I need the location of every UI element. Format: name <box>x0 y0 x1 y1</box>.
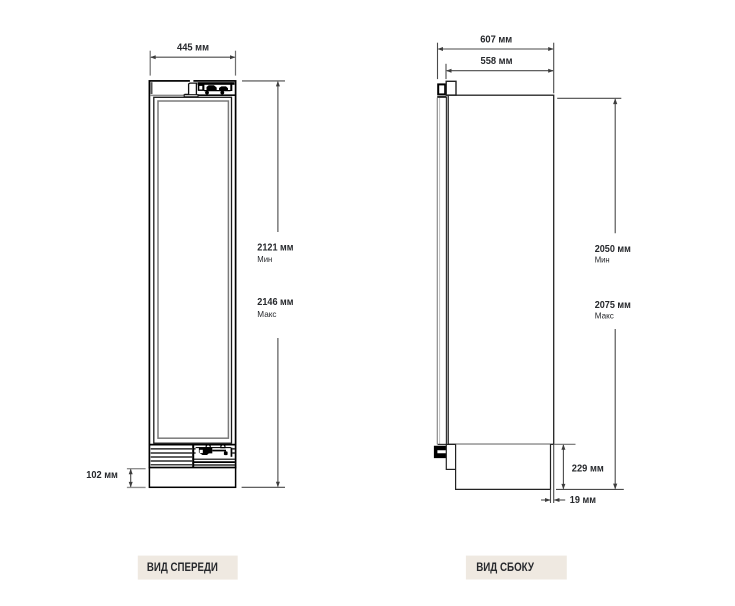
svg-text:229 мм: 229 мм <box>572 464 604 475</box>
svg-text:Макс: Макс <box>257 309 277 319</box>
svg-text:558 мм: 558 мм <box>481 56 513 67</box>
svg-text:Мин: Мин <box>257 254 272 264</box>
svg-text:ВИД СПЕРЕДИ: ВИД СПЕРЕДИ <box>147 562 218 574</box>
svg-text:445 мм: 445 мм <box>177 42 209 53</box>
svg-text:ВИД СБОКУ: ВИД СБОКУ <box>476 562 535 574</box>
svg-text:102 мм: 102 мм <box>86 470 118 481</box>
svg-text:2075 мм: 2075 мм <box>595 300 631 311</box>
svg-text:2050 мм: 2050 мм <box>595 244 631 255</box>
svg-text:2121 мм: 2121 мм <box>257 242 293 253</box>
svg-text:Мин: Мин <box>595 255 610 265</box>
svg-text:607 мм: 607 мм <box>480 34 512 45</box>
svg-text:19 мм: 19 мм <box>570 495 596 506</box>
svg-text:Макс: Макс <box>595 311 615 321</box>
svg-text:2146 мм: 2146 мм <box>257 297 293 308</box>
